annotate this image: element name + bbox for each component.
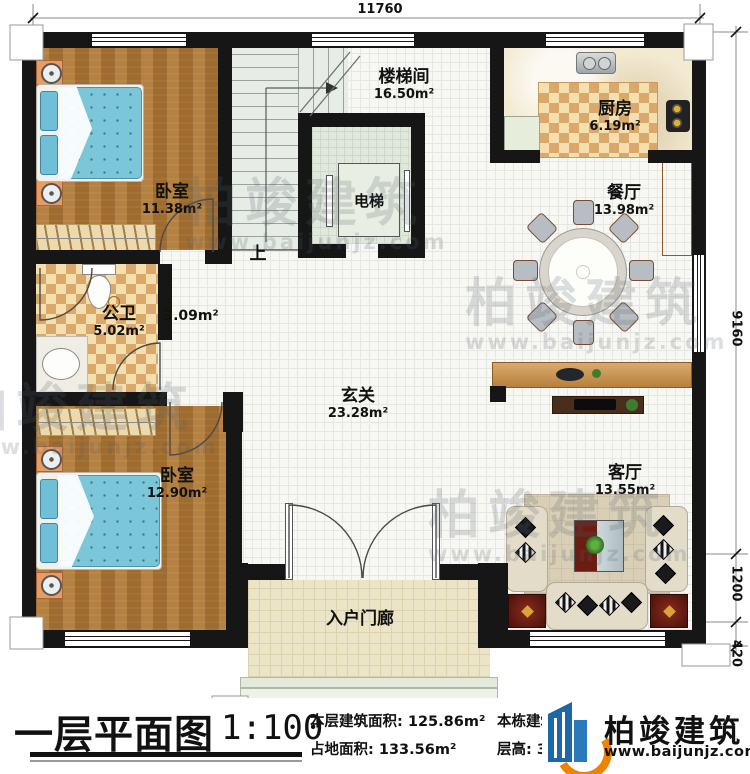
floor-area-value: 125.86m² [408,714,485,730]
site-area-value: 133.56m² [379,742,456,758]
dimension-right: 9160 [729,299,744,359]
plan-linework [0,0,750,774]
floor-plan-canvas: 卧室 11.38m² 楼梯间 16.50m² 厨房 6.19m² 餐厅 13.9… [0,0,750,774]
height-label: 层高: [497,742,532,758]
dimension-right-porch: 1200 [729,554,744,614]
floor-area-stat: 本层建筑面积: 125.86m² [310,710,485,731]
dimension-right-step: 420 [729,624,744,684]
logo-url: www.baijunjz.com [604,744,750,760]
site-area-stat: 占地面积: 133.56m² [310,738,456,759]
dimension-top: 11760 [330,2,430,17]
floor-area-label: 本层建筑面积: [310,714,403,730]
site-area-label: 占地面积: [310,742,374,758]
plan-scale: 1:100 [221,708,323,748]
title-underline [30,752,302,757]
title-underline-thin [30,760,302,762]
title-block: 一层平面图 1:100 本层建筑面积: 125.86m² 占地面积: 133.5… [0,698,750,774]
